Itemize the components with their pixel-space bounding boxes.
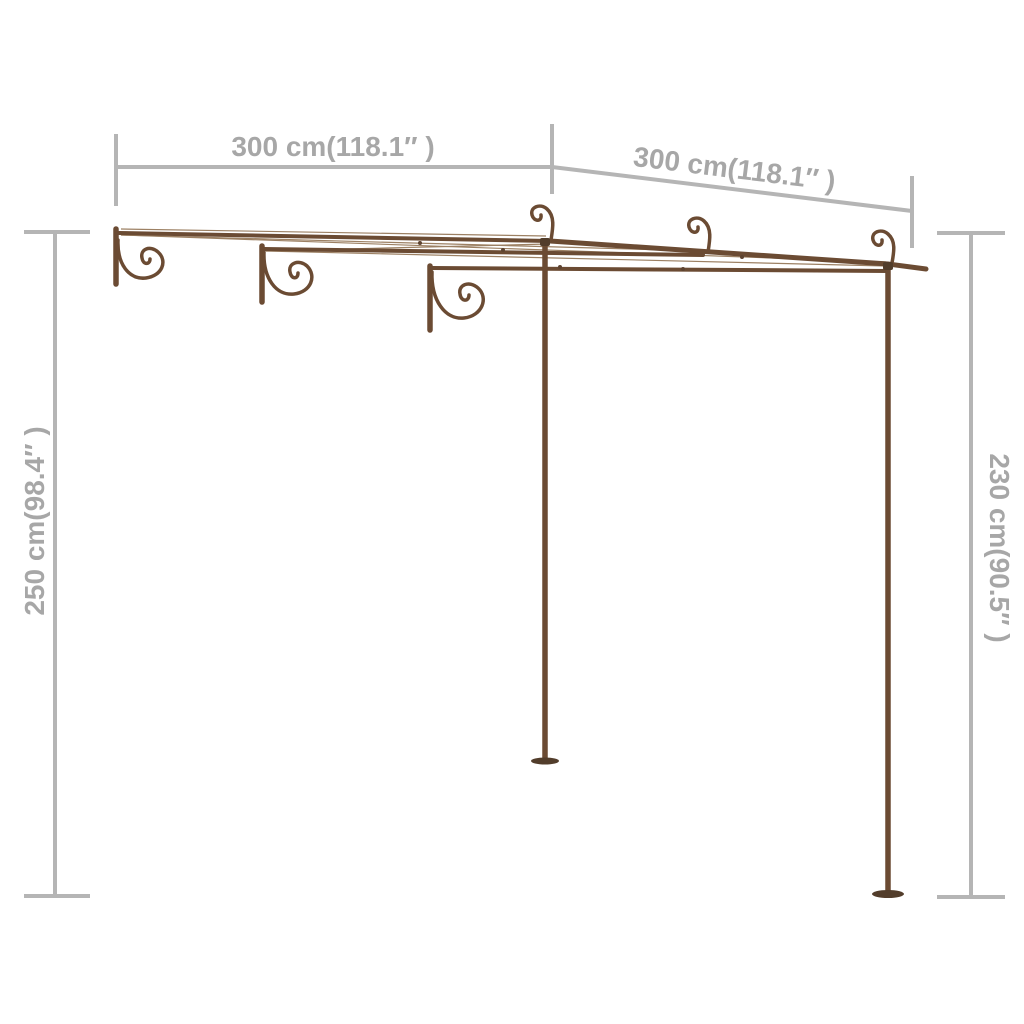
post-joint bbox=[883, 262, 893, 270]
dim-label-top-left: 300 cm(118.1″ ) bbox=[231, 131, 434, 162]
joints-and-feet bbox=[531, 238, 904, 898]
wire-hook bbox=[681, 267, 685, 271]
scroll-ornament bbox=[264, 252, 312, 294]
scroll-ornament bbox=[432, 272, 483, 318]
dim-label-left: 250 cm(98.4″ ) bbox=[19, 426, 50, 615]
dim-label-right: 230 cm(90.5″ ) bbox=[984, 453, 1015, 642]
post-foot bbox=[531, 758, 559, 765]
pergola-diagram-svg: 300 cm(118.1″ ) 300 cm(118.1″ ) 250 cm(9… bbox=[0, 0, 1024, 1024]
pergola-structure bbox=[116, 206, 926, 898]
scroll-ornament bbox=[873, 231, 894, 263]
product-dimension-diagram: 300 cm(118.1″ ) 300 cm(118.1″ ) 250 cm(9… bbox=[0, 0, 1024, 1024]
post-joint bbox=[540, 238, 550, 246]
scroll-ornament bbox=[118, 240, 163, 278]
scroll-ornament bbox=[532, 206, 553, 240]
wire-hook bbox=[740, 255, 744, 259]
support-posts bbox=[545, 241, 888, 893]
wire-hook bbox=[558, 265, 562, 269]
rafter-beam bbox=[432, 268, 888, 271]
wire-hook bbox=[501, 248, 505, 252]
wire-hook bbox=[418, 241, 422, 245]
post-foot bbox=[872, 890, 904, 898]
scroll-ornament bbox=[689, 218, 710, 252]
